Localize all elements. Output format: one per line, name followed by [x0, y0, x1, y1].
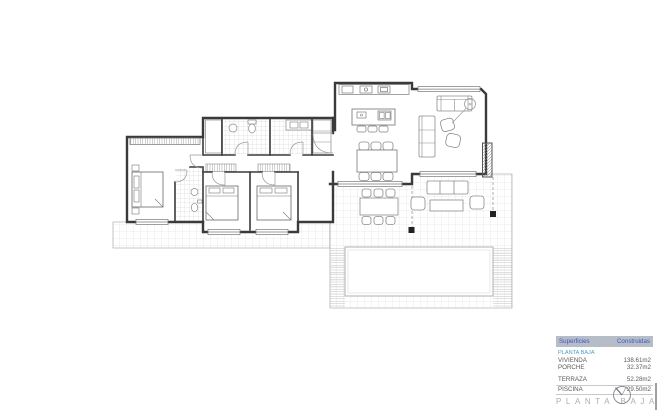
swimming-pool	[345, 247, 493, 296]
bedroom-2-bed	[206, 186, 238, 220]
bedroom-3-bed	[257, 186, 291, 220]
row-label: VIVIENDA	[558, 357, 587, 364]
porch-pillar	[490, 211, 496, 217]
page: Superficies Construidas PLANTA BAJA VIVI…	[0, 0, 660, 410]
table-row-vivienda: VIVIENDA 138.61m2	[556, 357, 653, 364]
built-column-header: Construidas	[617, 338, 650, 345]
areas-table: Superficies Construidas PLANTA BAJA VIVI…	[556, 336, 653, 395]
table-row-piscina: PISCINA 29.50m2	[556, 386, 653, 395]
row-label: TERRAZA	[558, 376, 587, 383]
areas-table-header: Superficies Construidas	[556, 336, 653, 347]
north-arrow-compass-icon	[610, 382, 634, 408]
row-label: PORCHE	[558, 364, 584, 371]
fireplace	[483, 143, 493, 177]
bedroom-1-bed	[132, 165, 163, 214]
porch-pillar	[409, 227, 415, 233]
table-row-terraza: TERRAZA 52.28m2	[556, 376, 653, 385]
dining-set	[357, 142, 397, 181]
ensuite-bathroom-floor	[176, 168, 202, 221]
table-group-label: PLANTA BAJA	[556, 350, 653, 357]
outdoor-dining-set	[360, 189, 398, 225]
row-value: 32.37m2	[627, 364, 651, 371]
kitchen-counter	[339, 85, 409, 95]
row-value: 138.61m2	[623, 357, 651, 364]
row-label: PISCINA	[558, 386, 583, 393]
sheet-edge-rule	[655, 383, 657, 410]
table-row-porche: PORCHE 32.37m2	[556, 364, 653, 371]
surfaces-column-header: Superficies	[559, 338, 590, 345]
